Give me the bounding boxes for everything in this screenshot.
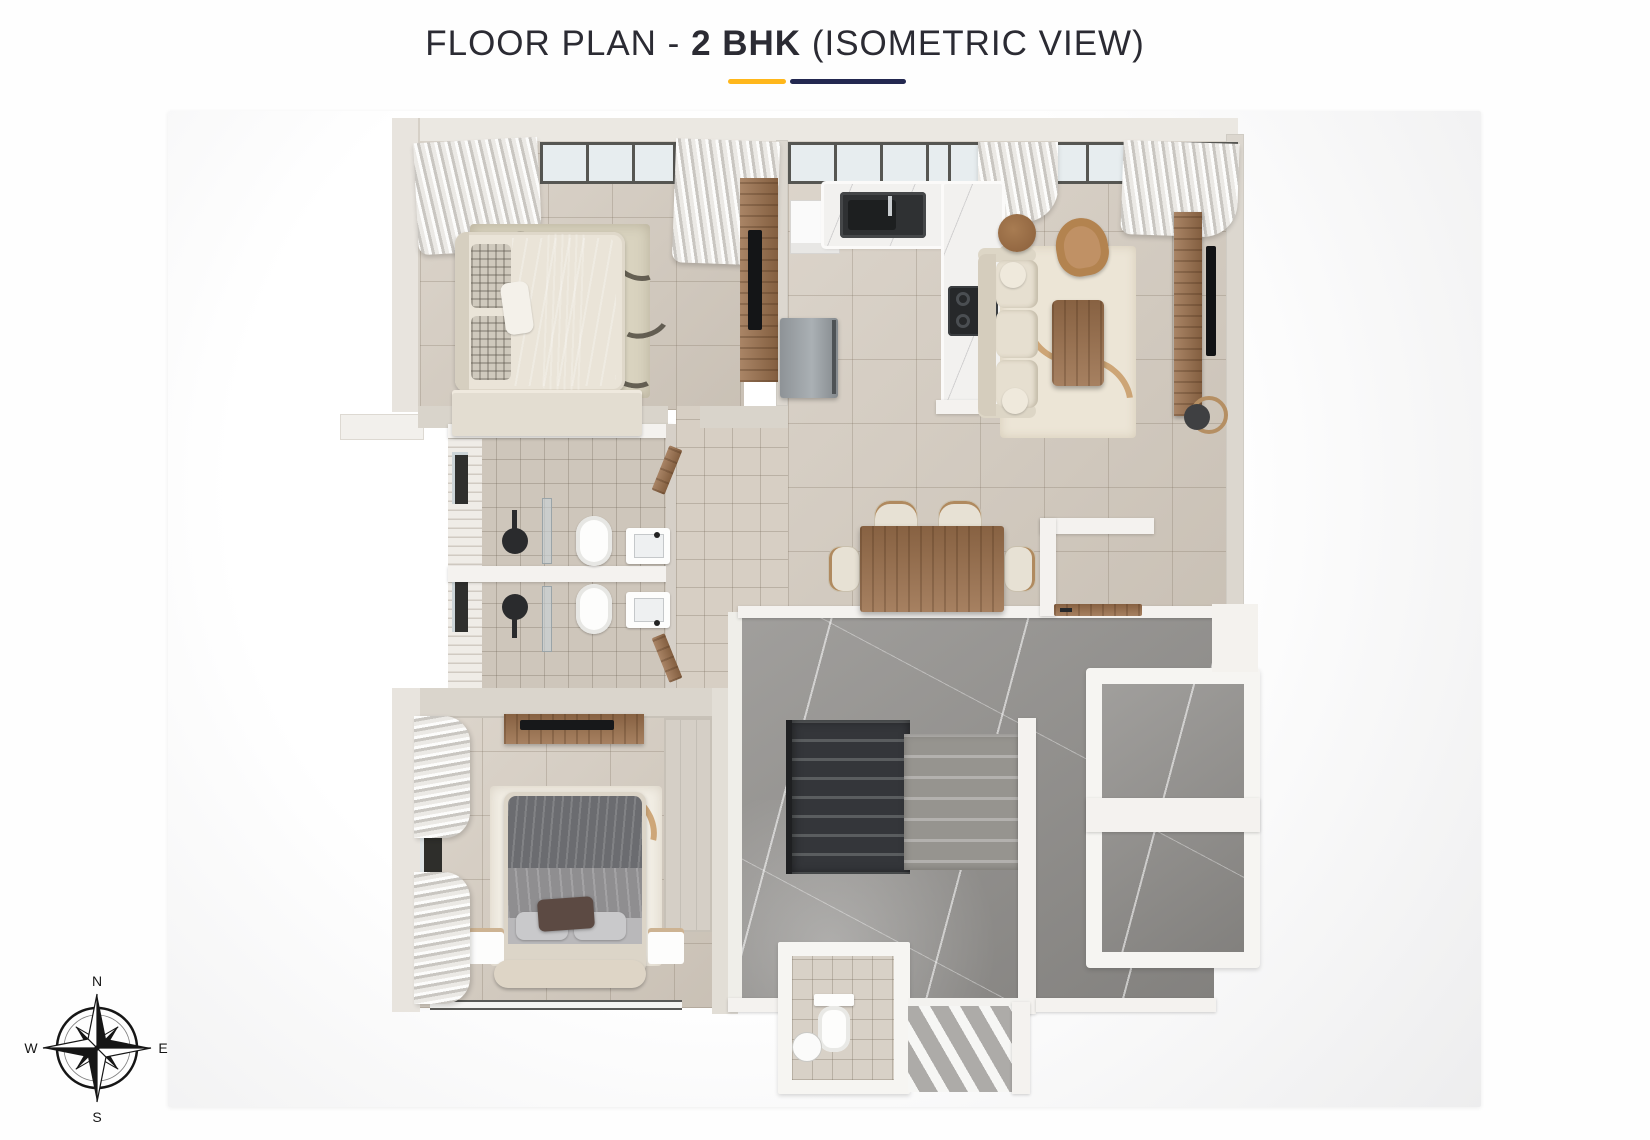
sink-faucet bbox=[654, 620, 660, 626]
coffee-table bbox=[1052, 300, 1104, 386]
foyer-partition-horizontal bbox=[1040, 518, 1154, 534]
powder-toilet-tank bbox=[814, 994, 854, 1006]
shower-glass-panel bbox=[542, 498, 552, 564]
entry-canopy-slats bbox=[908, 1006, 1012, 1092]
page-title-suffix: (ISOMETRIC VIEW) bbox=[801, 24, 1145, 63]
compass-center bbox=[94, 1045, 99, 1050]
landing-west-wall bbox=[728, 612, 742, 1008]
compass-label-east: E bbox=[158, 1040, 167, 1056]
curtain-bedroom-2-upper bbox=[414, 716, 470, 838]
bed-1-headboard bbox=[455, 232, 469, 392]
bedroom-2-sliding-door bbox=[430, 1000, 682, 1010]
toilet bbox=[576, 516, 612, 566]
entry-corner-wall bbox=[1212, 604, 1258, 672]
curtain-bedroom-2-lower bbox=[414, 872, 470, 1004]
title-underline-navy bbox=[790, 79, 906, 84]
cooktop-burner bbox=[956, 314, 970, 328]
nightstand bbox=[648, 928, 684, 964]
shower-glass-panel bbox=[542, 586, 552, 652]
sink-basin bbox=[634, 598, 664, 622]
shower-head bbox=[502, 528, 528, 554]
sofa-backrest bbox=[978, 254, 996, 416]
bedroom-2-tv bbox=[520, 720, 614, 730]
powder-sink-round bbox=[792, 1032, 822, 1062]
side-table bbox=[998, 214, 1036, 252]
cooktop-burner bbox=[956, 292, 970, 306]
compass-label-south: S bbox=[92, 1109, 101, 1125]
canopy-side-wall bbox=[1012, 1002, 1030, 1094]
sofa-throw-pillow bbox=[1002, 388, 1028, 414]
bathroom-window-1 bbox=[452, 452, 468, 504]
compass-rose: N E S W bbox=[22, 962, 172, 1134]
dining-chair bbox=[1004, 546, 1036, 592]
hallway-north-wall bbox=[700, 406, 788, 428]
compass-label-west: W bbox=[24, 1040, 38, 1056]
landing-south-wall-left bbox=[728, 998, 784, 1012]
floor-plan-page: FLOOR PLAN - 2 BHK (ISOMETRIC VIEW) bbox=[0, 0, 1650, 1140]
refrigerator bbox=[780, 318, 838, 398]
sink-faucet bbox=[654, 532, 660, 538]
shower-arm bbox=[512, 618, 517, 638]
stair-flight-light bbox=[904, 734, 1020, 870]
entrance-door-handle bbox=[1060, 608, 1072, 612]
bedroom-1-dresser bbox=[452, 390, 642, 436]
toilet bbox=[576, 584, 612, 634]
tv-console bbox=[1174, 212, 1202, 416]
bed-2-accent-cushion bbox=[537, 896, 595, 932]
landing-south-wall-right bbox=[1036, 998, 1216, 1012]
stair-divider-wall bbox=[1018, 718, 1036, 1014]
bedroom-1-skylight-window bbox=[540, 142, 676, 184]
shower-arm bbox=[512, 510, 517, 530]
foyer-partition-vertical bbox=[1040, 518, 1056, 616]
sink-basin bbox=[634, 534, 664, 558]
dining-chair bbox=[828, 546, 860, 592]
bedroom-1-tv bbox=[748, 230, 762, 330]
sofa-throw-pillow bbox=[1000, 262, 1026, 288]
kitchen-faucet bbox=[888, 196, 892, 216]
page-title: FLOOR PLAN - 2 BHK (ISOMETRIC VIEW) bbox=[360, 24, 1210, 64]
page-title-prefix: FLOOR PLAN - bbox=[425, 24, 691, 63]
powder-toilet bbox=[818, 1006, 850, 1052]
stair-flight-dark bbox=[786, 720, 910, 874]
nightstand bbox=[468, 928, 504, 964]
dining-table bbox=[860, 526, 1004, 612]
sofa-cushion bbox=[996, 310, 1038, 358]
title-underline-gold bbox=[728, 79, 786, 84]
shower-head bbox=[502, 594, 528, 620]
bathroom-window-2 bbox=[452, 574, 468, 632]
terrace-niche-divider bbox=[1086, 798, 1260, 832]
compass-label-north: N bbox=[92, 973, 102, 989]
wall-clock-shadow-disc bbox=[1184, 404, 1210, 430]
page-title-highlight: 2 BHK bbox=[691, 24, 801, 63]
bed-2-duvet-dark bbox=[508, 796, 642, 870]
bathroom-divider-wall bbox=[448, 566, 672, 582]
living-room-tv bbox=[1206, 246, 1216, 356]
bed-1-throw-blanket bbox=[542, 233, 587, 390]
bed-2-bench bbox=[494, 960, 646, 988]
service-ledge bbox=[340, 414, 424, 440]
refrigerator-handle bbox=[832, 320, 836, 394]
